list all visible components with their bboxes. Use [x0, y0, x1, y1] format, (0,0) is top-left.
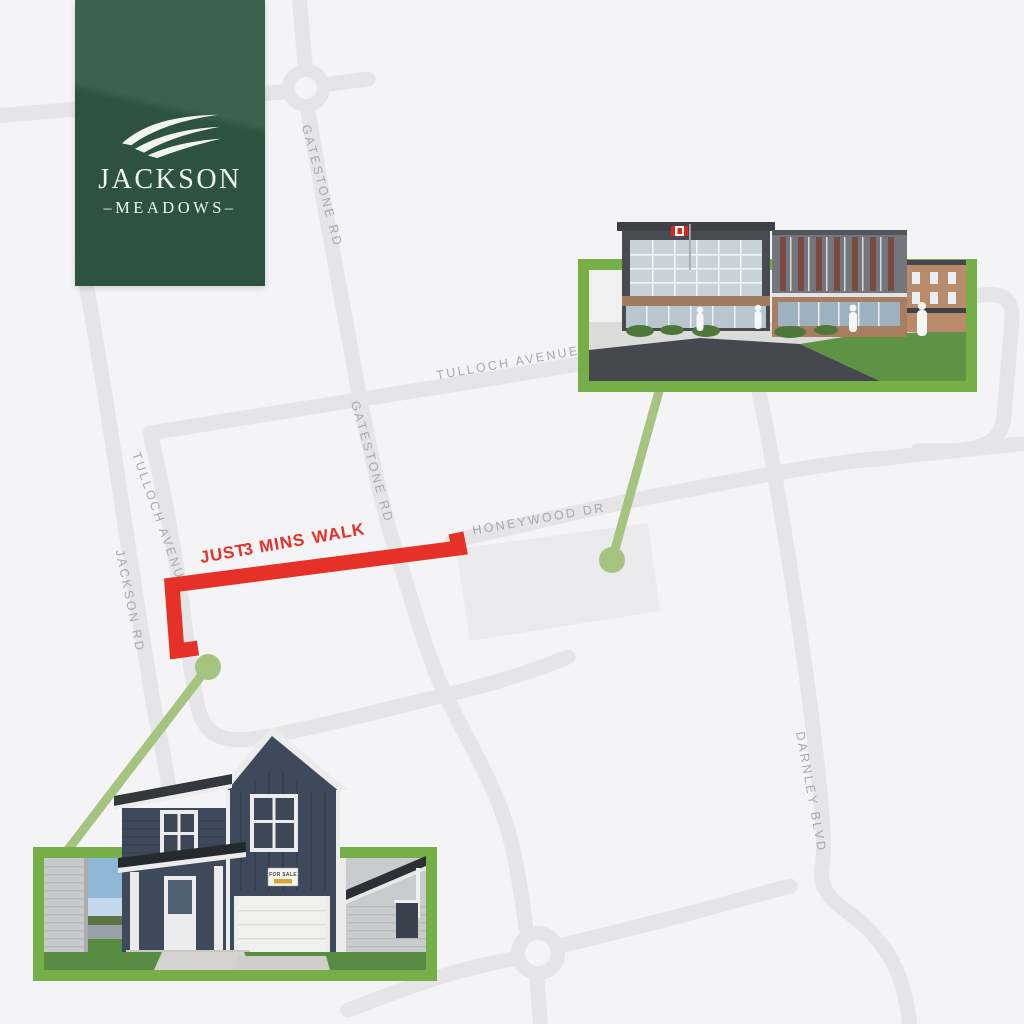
- road-roundabout2-south: [537, 980, 541, 1024]
- marker-school-dot: [599, 547, 625, 573]
- road-roundabout-east-stub: [330, 79, 368, 84]
- jackson-meadows-logo: JACKSON –MEADOWS–: [75, 0, 265, 286]
- jackson-meadows-map-infographic: GATESTONE RD TULLOCH AVENUE GATESTONE RD…: [0, 0, 1024, 1024]
- for-sale-sign: FOR SALE: [268, 868, 298, 886]
- marker-house-dot: [195, 654, 221, 680]
- roundabout-south: [511, 926, 565, 980]
- roundabout-north: [282, 64, 330, 112]
- logo-subtitle: –MEADOWS–: [103, 200, 236, 217]
- field-rows-icon: [112, 112, 228, 160]
- road-roundabout-north-stub: [299, 0, 305, 64]
- for-sale-sign-text: FOR SALE: [269, 872, 297, 878]
- logo-title: JACKSON: [98, 166, 242, 194]
